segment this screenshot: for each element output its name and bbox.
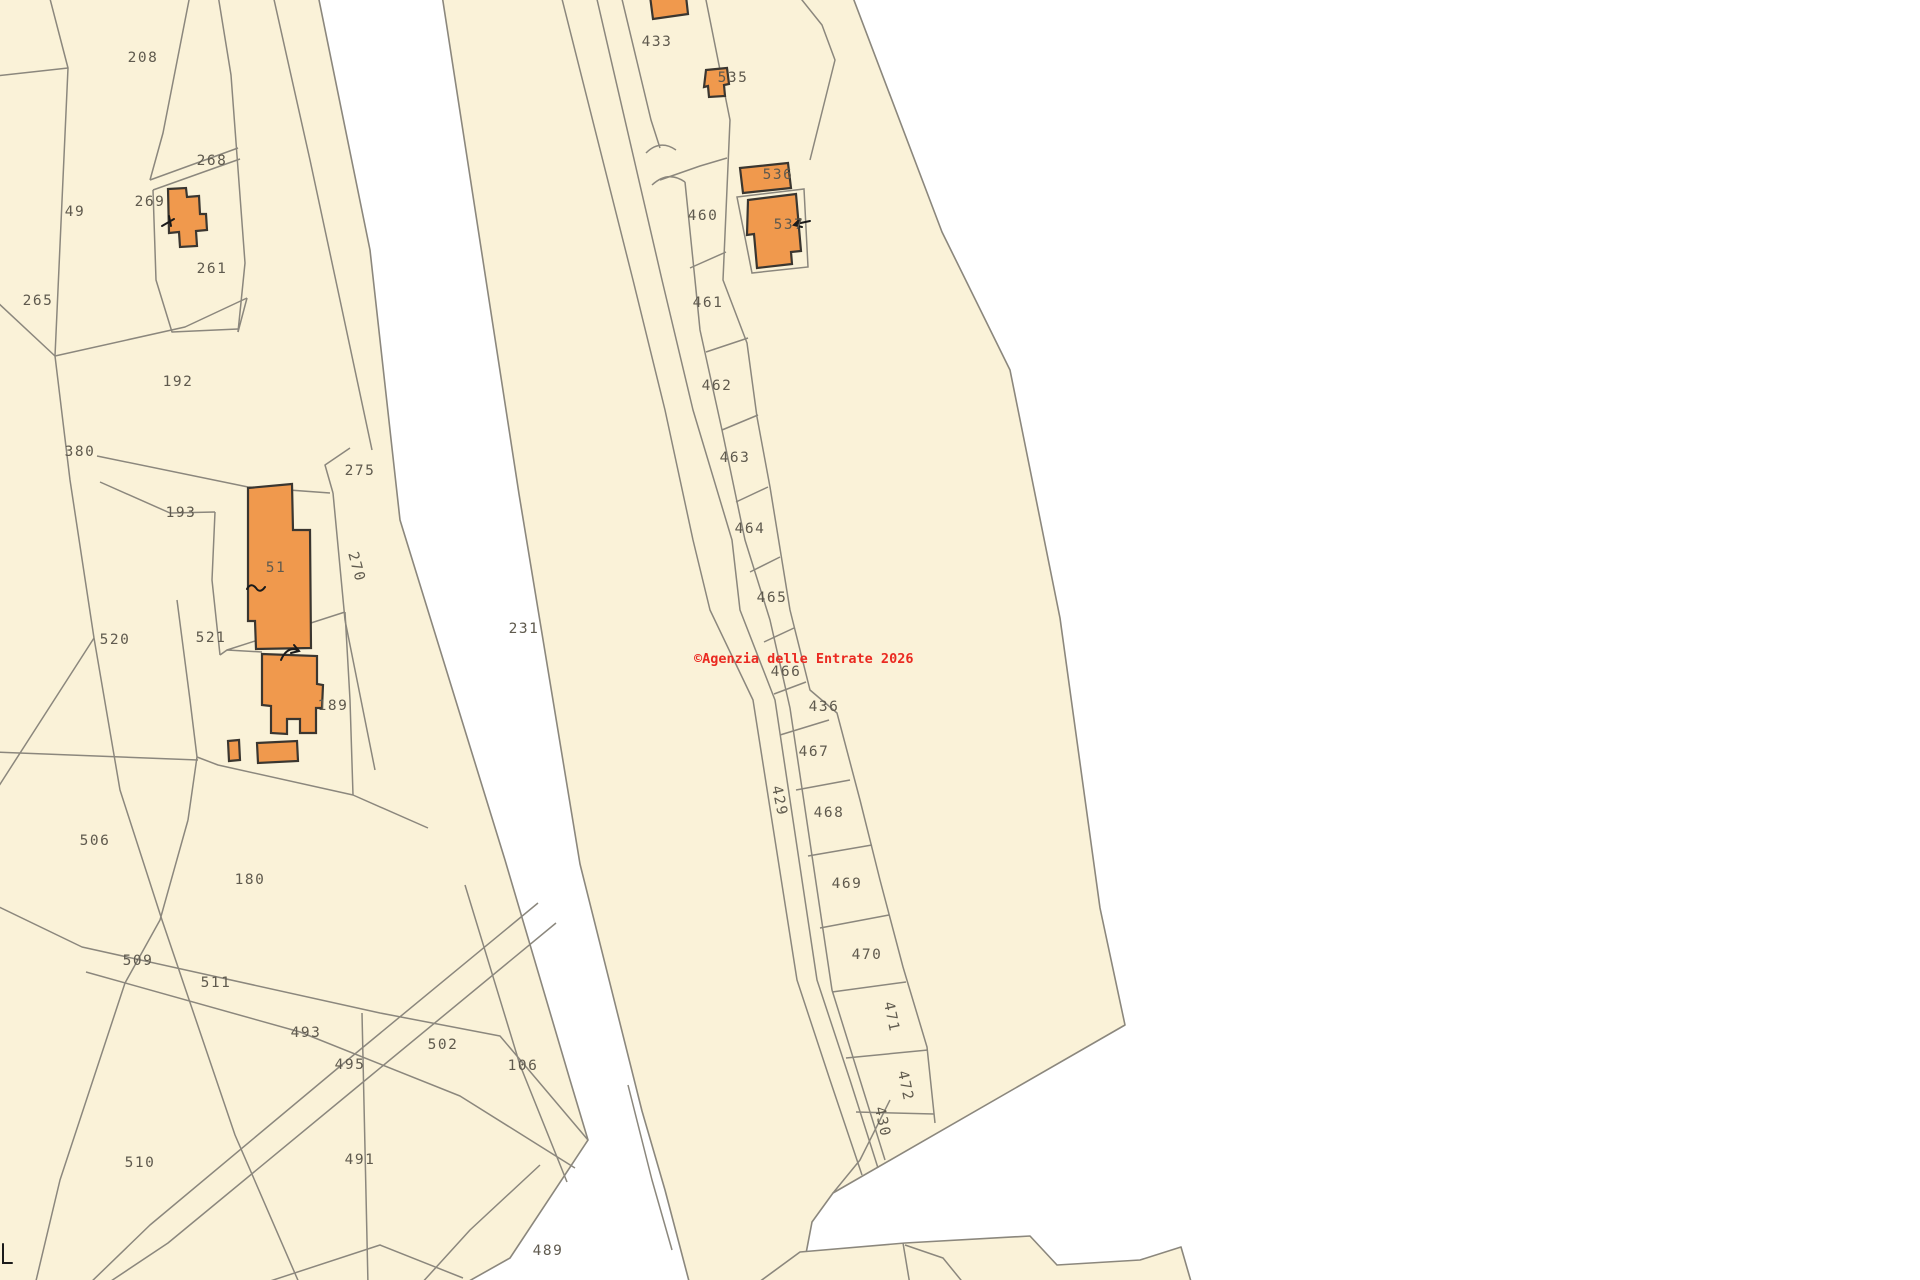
parcel-label-380: 380: [65, 444, 96, 460]
parcel-label-509: 509: [123, 953, 154, 969]
parcel-label-49: 49: [65, 204, 85, 220]
parcel-label-461: 461: [693, 295, 724, 311]
parcel-label-51: 51: [266, 560, 286, 576]
watermark: ©Agenzia delle Entrate 2026: [694, 651, 913, 667]
parcel-label-537: 537: [774, 217, 805, 233]
parcel-label-268: 268: [197, 153, 228, 169]
parcel-label-106: 106: [508, 1058, 539, 1074]
building-small-b: [257, 741, 298, 763]
parcel-label-510: 510: [125, 1155, 156, 1171]
parcel-label-261: 261: [197, 261, 228, 277]
parcel-label-502: 502: [428, 1037, 459, 1053]
parcel-label-462: 462: [702, 378, 733, 394]
parcel-label-465: 465: [757, 590, 788, 606]
parcel-label-470: 470: [852, 947, 883, 963]
parcel-label-536: 536: [763, 167, 794, 183]
parcel-label-521: 521: [196, 630, 227, 646]
parcel-label-495: 495: [335, 1057, 366, 1073]
parcel-label-192: 192: [163, 374, 194, 390]
parcel-label-460: 460: [688, 208, 719, 224]
parcel-label-511: 511: [201, 975, 232, 991]
parcel-label-269: 269: [135, 194, 166, 210]
bottom-band: [755, 1236, 1192, 1280]
cadastral-map-viewer: 2082682694926126519238027519351270520521…: [0, 0, 1920, 1280]
parcel-label-231: 231: [509, 621, 540, 637]
parcel-label-208: 208: [128, 50, 159, 66]
parcel-label-491: 491: [345, 1152, 376, 1168]
parcel-label-469: 469: [832, 876, 863, 892]
parcel-label-265: 265: [23, 293, 54, 309]
parcel-label-189: 189: [318, 698, 349, 714]
parcel-label-180: 180: [235, 872, 266, 888]
parcel-label-467: 467: [799, 744, 830, 760]
parcel-label-468: 468: [814, 805, 845, 821]
parcel-label-535: 535: [718, 70, 749, 86]
parcel-label-463: 463: [720, 450, 751, 466]
building-small-a: [228, 740, 240, 761]
parcel-label-275: 275: [345, 463, 376, 479]
parcel-label-520: 520: [100, 632, 131, 648]
parcel-label-433: 433: [642, 34, 673, 50]
parcel-label-464: 464: [735, 521, 766, 537]
parcel-label-436: 436: [809, 699, 840, 715]
parcel-label-506: 506: [80, 833, 111, 849]
map-canvas[interactable]: 2082682694926126519238027519351270520521…: [0, 0, 1920, 1280]
parcel-label-489: 489: [533, 1243, 564, 1259]
parcel-label-193: 193: [166, 505, 197, 521]
parcel-label-493: 493: [291, 1025, 322, 1041]
